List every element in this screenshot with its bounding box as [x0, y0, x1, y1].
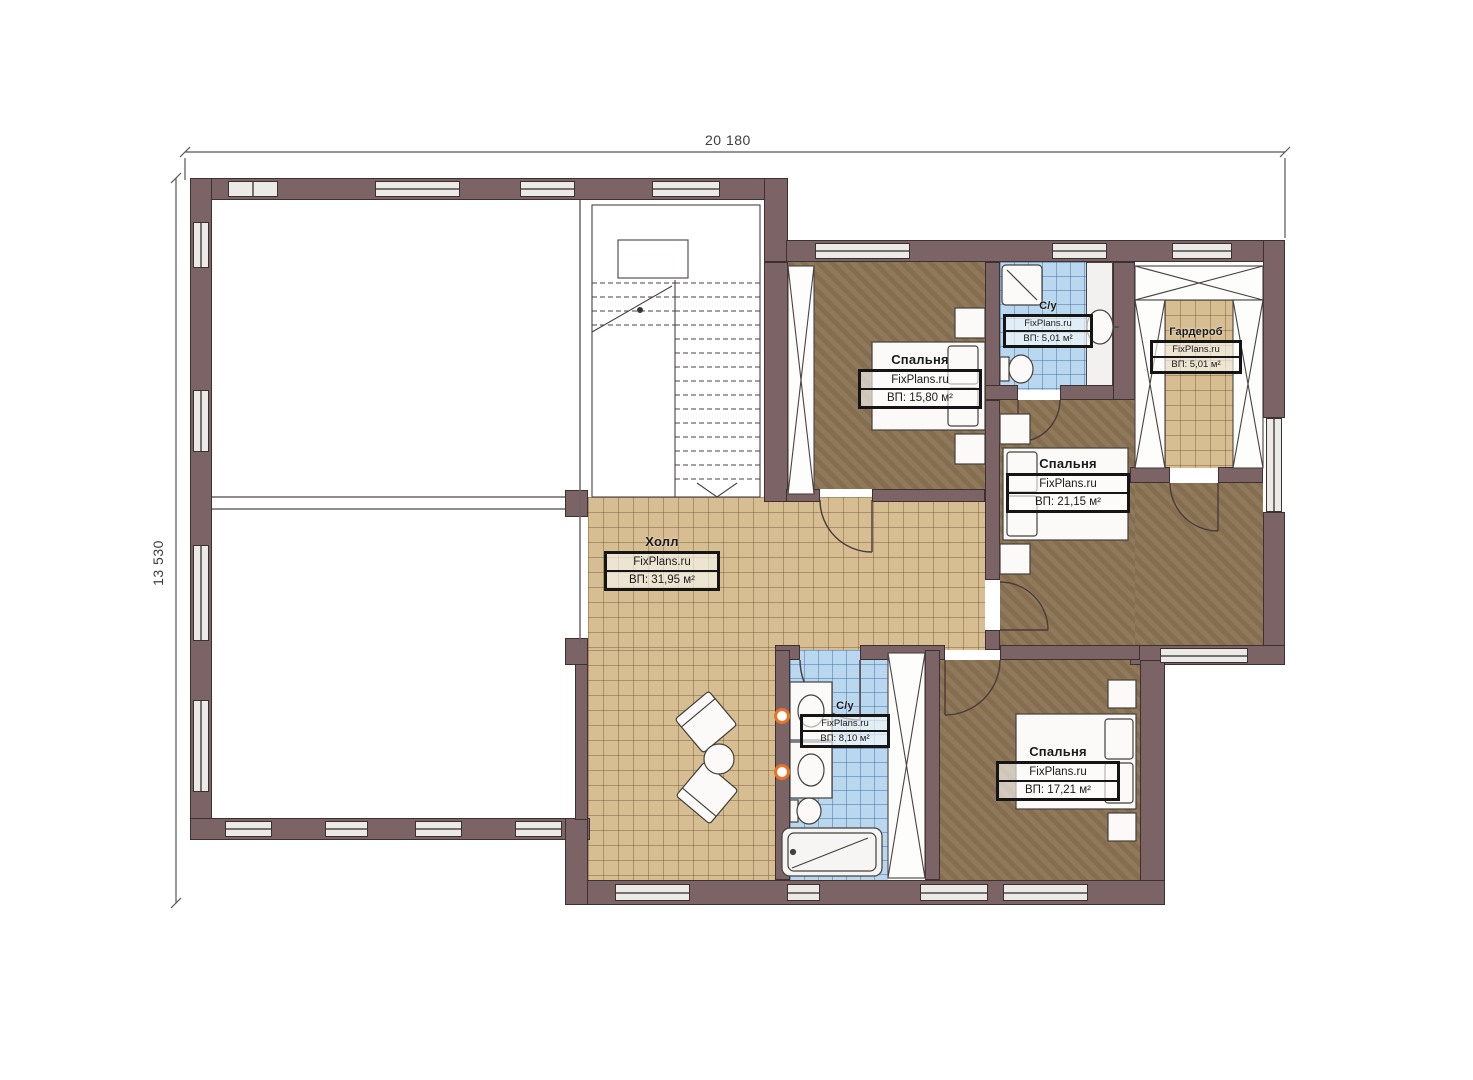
window	[193, 545, 209, 641]
railing	[212, 200, 580, 645]
label-bathroom-top: С/у FixPlans.ru ВП: 5,01 м²	[1003, 300, 1093, 348]
floor-terrace	[588, 650, 775, 880]
wall-hall-nub-top	[565, 490, 588, 517]
window	[815, 243, 910, 259]
floor-plan-canvas: 20 180 13 530 Спальня FixPlans.ru ВП: 15…	[0, 0, 1473, 1080]
wall-hall-nub-bottom	[565, 638, 588, 665]
window	[193, 390, 209, 452]
wall-terrace-bath-divider	[775, 650, 790, 880]
window	[520, 181, 575, 197]
watermark: FixPlans.ru	[802, 716, 888, 731]
window	[415, 821, 462, 837]
room-area: ВП: 31,95 м²	[606, 571, 718, 589]
wall-bath-bedroom-divider	[925, 650, 940, 880]
room-name: Спальня	[996, 744, 1120, 759]
window	[193, 222, 209, 268]
wall-bedroom-bottom-right	[1140, 660, 1165, 905]
wall-exterior-step	[764, 178, 788, 262]
wall-terrace-left-interior	[575, 645, 588, 820]
staircase	[592, 205, 760, 497]
floor-bathroom-bottom	[790, 650, 888, 880]
window	[1266, 418, 1282, 512]
wall-wardrobe-bottom-b	[1218, 467, 1263, 483]
room-name: Гардероб	[1150, 326, 1242, 338]
window	[1052, 243, 1107, 259]
room-area: ВП: 5,01 м²	[1152, 357, 1240, 372]
watermark: FixPlans.ru	[998, 763, 1118, 781]
room-area: ВП: 5,01 м²	[1005, 331, 1091, 346]
watermark: FixPlans.ru	[1005, 316, 1091, 331]
label-wardrobe: Гардероб FixPlans.ru ВП: 5,01 м²	[1150, 326, 1242, 374]
room-area: ВП: 21,15 м²	[1008, 493, 1128, 511]
window	[1172, 243, 1232, 259]
floor-bedroom-right-b	[1135, 483, 1263, 645]
wall-exterior-right-mid	[1263, 512, 1285, 665]
closet-bathroom-bottom	[888, 653, 925, 878]
window	[515, 821, 562, 837]
window	[920, 884, 988, 901]
window	[1003, 884, 1088, 901]
wall-bedroom-top-hall-a	[786, 489, 820, 502]
wall-under-bath-a	[985, 385, 1018, 400]
window	[652, 181, 720, 197]
window	[615, 884, 690, 901]
room-name: Спальня	[1006, 456, 1130, 471]
label-bedroom-right: Спальня FixPlans.ru ВП: 21,15 м²	[1006, 456, 1130, 513]
room-name: Спальня	[858, 352, 982, 367]
watermark: FixPlans.ru	[1152, 342, 1240, 357]
label-bedroom-top: Спальня FixPlans.ru ВП: 15,80 м²	[858, 352, 982, 409]
watermark: FixPlans.ru	[860, 371, 980, 389]
wall-bedroom-top-hall-b	[872, 489, 985, 502]
wall-stair-bedroom-divider	[764, 262, 788, 502]
room-name: С/у	[800, 700, 890, 712]
window	[225, 821, 272, 837]
window	[228, 181, 278, 197]
dimension-height: 13 530	[150, 540, 166, 586]
window	[193, 700, 209, 792]
window	[1160, 648, 1248, 663]
room-area: ВП: 8,10 м²	[802, 731, 888, 746]
wall-bedroom-bath-divider	[985, 262, 1000, 395]
dimension-width: 20 180	[705, 132, 751, 148]
closet-wardrobe-top	[1135, 266, 1263, 300]
wall-exterior-right-upper	[1263, 240, 1285, 418]
watermark: FixPlans.ru	[606, 553, 718, 571]
wall-hall-bottom-c	[1000, 645, 1140, 660]
label-hall: Холл FixPlans.ru ВП: 31,95 м²	[604, 534, 720, 591]
wall-terrace-left-exterior	[565, 818, 588, 905]
wall-bath-wardrobe-divider	[1113, 262, 1135, 400]
label-bedroom-bottom: Спальня FixPlans.ru ВП: 17,21 м²	[996, 744, 1120, 801]
label-bathroom-bottom: С/у FixPlans.ru ВП: 8,10 м²	[800, 700, 890, 748]
room-area: ВП: 15,80 м²	[860, 389, 980, 407]
wall-hall-bedroom-right-a	[985, 400, 1000, 580]
room-name: С/у	[1003, 300, 1093, 312]
window	[325, 821, 368, 837]
room-area: ВП: 17,21 м²	[998, 781, 1118, 799]
window	[787, 884, 820, 901]
room-name: Холл	[604, 534, 720, 549]
floor-bedroom-right-a	[1000, 400, 1135, 645]
window	[375, 181, 460, 197]
wall-hall-bedroom-right-b	[985, 630, 1000, 650]
watermark: FixPlans.ru	[1008, 475, 1128, 493]
wall-wardrobe-bottom-a	[1130, 467, 1170, 483]
